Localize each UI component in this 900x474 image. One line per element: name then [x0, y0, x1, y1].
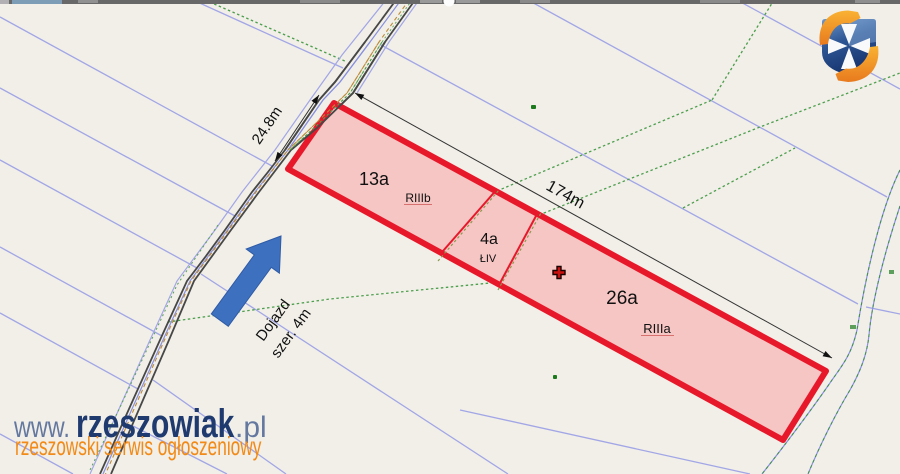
svg-text:RIIIa: RIIIa — [643, 321, 671, 336]
svg-text:ŁIV: ŁIV — [480, 253, 497, 265]
svg-text:RIIIb: RIIIb — [405, 191, 431, 205]
svg-text:26a: 26a — [606, 288, 638, 309]
svg-text:13a: 13a — [359, 169, 390, 189]
svg-text:rzeszowski serwis ogłoszeniowy: rzeszowski serwis ogłoszeniowy — [15, 431, 261, 460]
svg-text:4a: 4a — [480, 231, 498, 248]
